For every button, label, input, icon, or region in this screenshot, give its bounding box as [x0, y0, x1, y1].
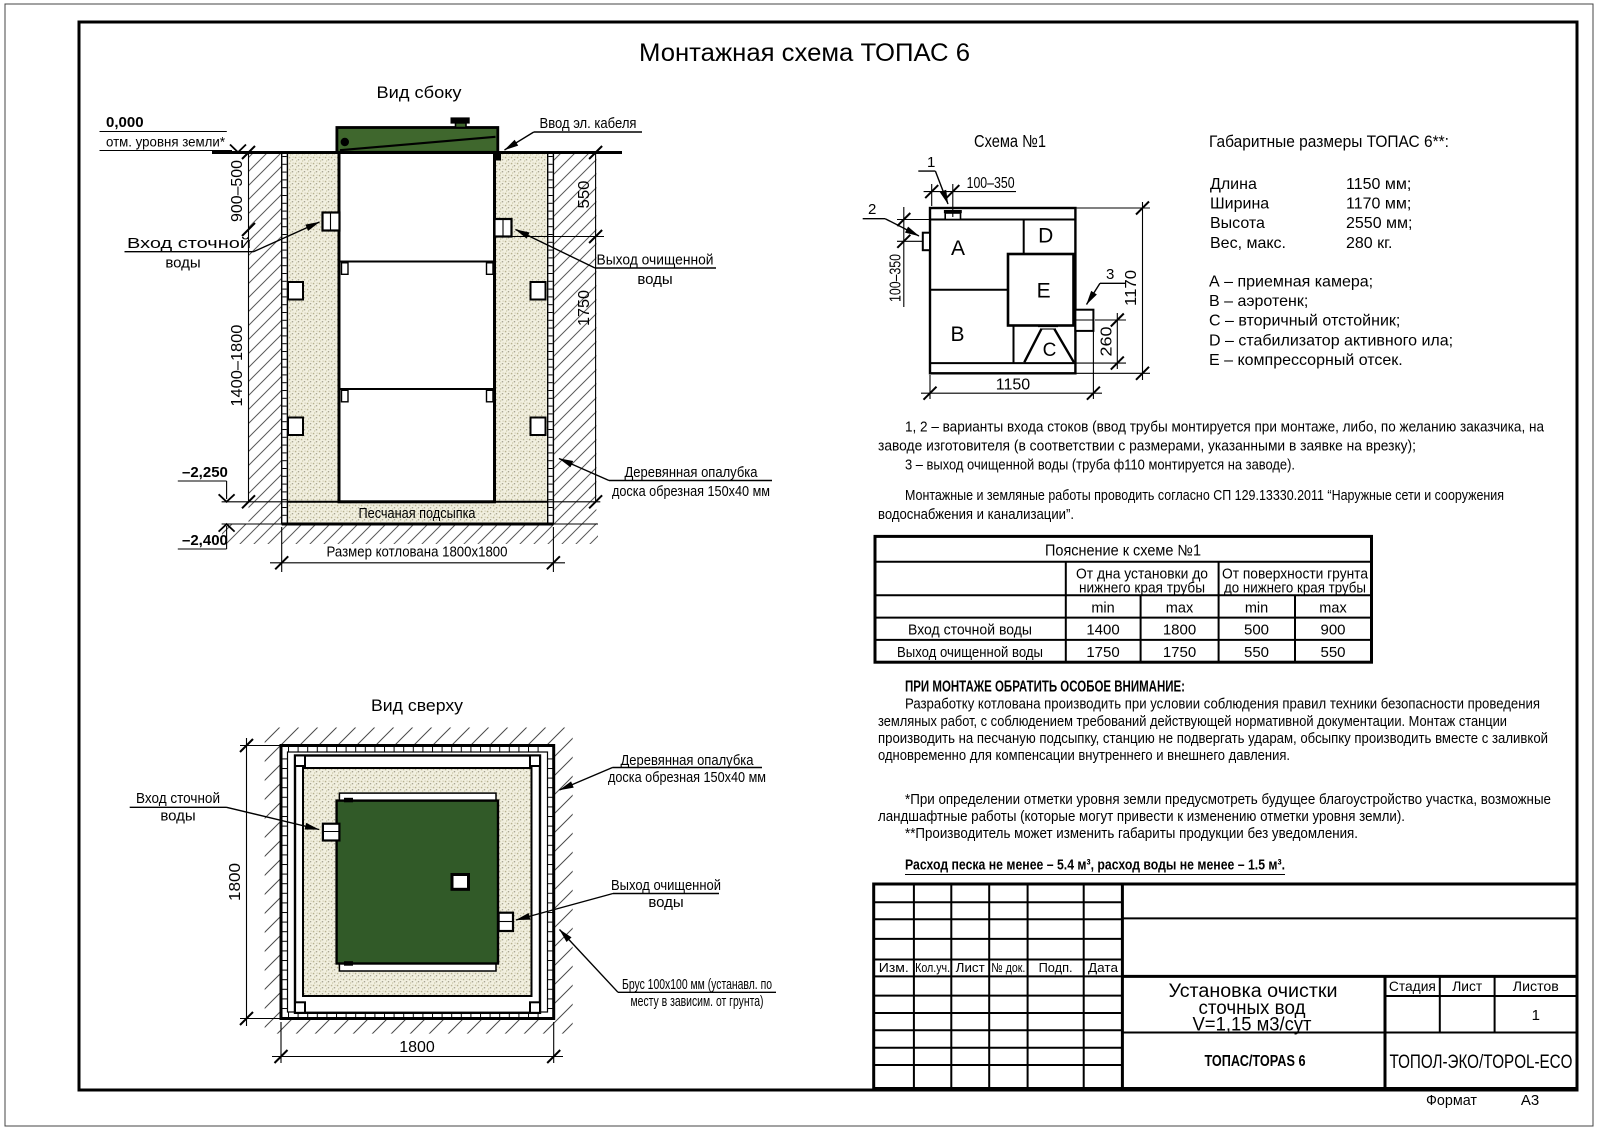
svg-text:Монтажные и земляные работы пр: Монтажные и земляные работы проводить со… [905, 487, 1504, 504]
svg-text:С: С [1043, 340, 1057, 361]
svg-text:–2,400: –2,400 [182, 532, 228, 549]
svg-text:Листов: Листов [1513, 978, 1559, 994]
svg-text:260: 260 [1099, 326, 1116, 356]
svg-text:ПРИ МОНТАЖЕ ОБРАТИТЬ ОСОБОЕ ВН: ПРИ МОНТАЖЕ ОБРАТИТЬ ОСОБОЕ ВНИМАНИЕ: [905, 679, 1185, 696]
svg-text:min: min [1245, 601, 1268, 617]
svg-text:1800: 1800 [399, 1039, 435, 1056]
svg-text:В – аэротенк;: В – аэротенк; [1209, 293, 1308, 310]
svg-text:Стадия: Стадия [1389, 978, 1436, 994]
svg-text:С – вторичный отстойник;: С – вторичный отстойник; [1209, 313, 1400, 330]
svg-text:1750: 1750 [1086, 644, 1119, 661]
svg-text:V=1,15 м3/сут: V=1,15 м3/сут [1193, 1015, 1312, 1036]
svg-text:500: 500 [1244, 622, 1269, 639]
svg-text:min: min [1091, 601, 1114, 617]
svg-text:550: 550 [1244, 644, 1269, 661]
svg-text:Вес, макс.: Вес, макс. [1210, 235, 1286, 252]
svg-text:0,000: 0,000 [106, 114, 144, 131]
svg-text:3 – выход очищенной воды (труб: 3 – выход очищенной воды (труба ф110 мон… [905, 457, 1295, 474]
svg-text:Длина: Длина [1210, 176, 1257, 193]
svg-text:В: В [950, 323, 964, 346]
svg-text:до нижнего края трубы: до нижнего края трубы [1224, 581, 1366, 597]
svg-text:производить на песчаную подсып: производить на песчаную подсыпку, станци… [878, 730, 1548, 747]
svg-text:*При определении отметки уровн: *При определении отметки уровня земли пр… [905, 791, 1551, 808]
svg-text:D – стабилизатор активного ила: D – стабилизатор активного ила; [1209, 332, 1453, 349]
svg-text:месту в зависим. от грунта): месту в зависим. от грунта) [631, 993, 764, 1010]
svg-text:водоснабжения и канализации”.: водоснабжения и канализации”. [878, 506, 1074, 523]
svg-text:Пояснение к схеме №1: Пояснение к схеме №1 [1045, 543, 1201, 560]
svg-text:Вход сточной: Вход сточной [127, 235, 251, 252]
svg-text:Деревянная опалубка: Деревянная опалубка [621, 752, 755, 769]
svg-text:А3: А3 [1521, 1092, 1539, 1109]
svg-text:Изм.: Изм. [879, 960, 909, 975]
svg-text:1170 мм;: 1170 мм; [1346, 196, 1411, 213]
svg-text:доска обрезная 150х40 мм: доска обрезная 150х40 мм [608, 769, 766, 786]
svg-text:Высота: Высота [1210, 215, 1265, 232]
svg-text:воды: воды [637, 271, 672, 288]
svg-text:Вид сбоку: Вид сбоку [377, 83, 463, 102]
svg-text:Подп.: Подп. [1039, 960, 1073, 975]
svg-text:1: 1 [927, 154, 935, 171]
svg-text:Ширина: Ширина [1210, 196, 1269, 213]
svg-text:воды: воды [165, 255, 200, 272]
svg-text:воды: воды [648, 894, 683, 911]
svg-text:одновременно для компенсации в: одновременно для компенсации внутреннего… [878, 747, 1290, 764]
svg-text:доска обрезная 150х40 мм: доска обрезная 150х40 мм [612, 483, 770, 500]
svg-text:1150: 1150 [996, 377, 1031, 394]
svg-text:1400: 1400 [1086, 622, 1119, 639]
svg-text:1: 1 [1532, 1007, 1540, 1024]
svg-text:1750: 1750 [576, 290, 593, 326]
svg-text:1800: 1800 [1163, 622, 1196, 639]
svg-text:1150 мм;: 1150 мм; [1346, 176, 1411, 193]
svg-text:Лист: Лист [1452, 978, 1483, 994]
svg-text:Выход очищенной воды: Выход очищенной воды [897, 644, 1043, 661]
svg-text:№ док.: № док. [991, 960, 1025, 975]
svg-text:Вход сточной воды: Вход сточной воды [908, 622, 1032, 639]
svg-text:Выход очищенной: Выход очищенной [597, 252, 714, 269]
svg-text:2550 мм;: 2550 мм; [1346, 215, 1412, 232]
svg-text:550: 550 [1320, 644, 1345, 661]
svg-text:Кол.уч.: Кол.уч. [915, 960, 950, 975]
svg-text:–2,250: –2,250 [182, 464, 228, 481]
svg-text:воды: воды [160, 808, 195, 825]
svg-text:550: 550 [576, 180, 593, 208]
svg-text:заводе изготовителя (в соответ: заводе изготовителя (в соответствии с ра… [878, 438, 1416, 455]
svg-text:2: 2 [868, 201, 876, 218]
svg-text:max: max [1166, 601, 1194, 617]
svg-text:Габаритные размеры ТОПАС 6**:: Габаритные размеры ТОПАС 6**: [1209, 132, 1449, 151]
svg-text:земляных работ, с соблюдением: земляных работ, с соблюдением требований… [878, 713, 1507, 730]
svg-text:D: D [1038, 225, 1053, 248]
svg-text:нижнего края трубы: нижнего края трубы [1079, 581, 1205, 597]
svg-text:ТОПОЛ-ЭКО/TOPOL-ECO: ТОПОЛ-ЭКО/TOPOL-ECO [1390, 1052, 1573, 1073]
svg-text:100–350: 100–350 [888, 254, 905, 302]
svg-text:Лист: Лист [956, 960, 985, 975]
svg-text:1750: 1750 [1163, 644, 1196, 661]
svg-text:100–350: 100–350 [967, 175, 1015, 192]
svg-text:Расход песка не менее – 5.4 м³: Расход песка не менее – 5.4 м³, расход в… [905, 857, 1285, 874]
svg-text:280 кг.: 280 кг. [1346, 235, 1392, 252]
svg-text:Дата: Дата [1088, 960, 1119, 975]
svg-text:Выход очищенной: Выход очищенной [611, 877, 721, 894]
svg-text:1800: 1800 [227, 863, 244, 901]
svg-text:Е: Е [1037, 280, 1051, 303]
svg-text:900–500: 900–500 [229, 160, 246, 222]
svg-text:А: А [951, 237, 965, 260]
svg-text:ландшафтные работы (которые мо: ландшафтные работы (которые могут привес… [878, 808, 1405, 825]
svg-text:Формат: Формат [1426, 1092, 1477, 1109]
svg-text:Монтажная схема ТОПАС 6: Монтажная схема ТОПАС 6 [639, 39, 970, 67]
svg-text:max: max [1319, 601, 1347, 617]
svg-text:А – приемная камера;: А – приемная камера; [1209, 274, 1373, 291]
svg-text:**Производитель может изменить: **Производитель может изменить габариты … [905, 825, 1358, 842]
svg-text:Разработку котлована производи: Разработку котлована производить при усл… [905, 696, 1540, 713]
svg-text:Вход сточной: Вход сточной [136, 790, 220, 807]
svg-text:1400–1800: 1400–1800 [229, 325, 246, 407]
svg-text:1, 2 – варианты входа стоков: 1, 2 – варианты входа стоков (ввод трубы… [905, 419, 1545, 436]
svg-text:отм. уровня земли*: отм. уровня земли* [106, 135, 226, 150]
svg-text:Размер котлована 1800х1800: Размер котлована 1800х1800 [327, 544, 508, 561]
svg-text:Брус 100х100 мм (устанавл. по: Брус 100х100 мм (устанавл. по [622, 976, 772, 993]
svg-text:Деревянная опалубка: Деревянная опалубка [625, 464, 759, 481]
svg-text:Схема №1: Схема №1 [974, 131, 1046, 151]
svg-text:Вид сверху: Вид сверху [371, 696, 464, 715]
svg-text:ТОПАС/TOPAS 6: ТОПАС/TOPAS 6 [1205, 1053, 1306, 1070]
svg-text:900: 900 [1320, 622, 1345, 639]
svg-text:Песчаная подсыпка: Песчаная подсыпка [359, 505, 477, 522]
svg-text:Е – компрессорный отсек.: Е – компрессорный отсек. [1209, 352, 1403, 369]
svg-text:3: 3 [1106, 266, 1114, 283]
svg-text:1170: 1170 [1123, 270, 1140, 306]
svg-text:Ввод эл. кабеля: Ввод эл. кабеля [540, 115, 637, 132]
